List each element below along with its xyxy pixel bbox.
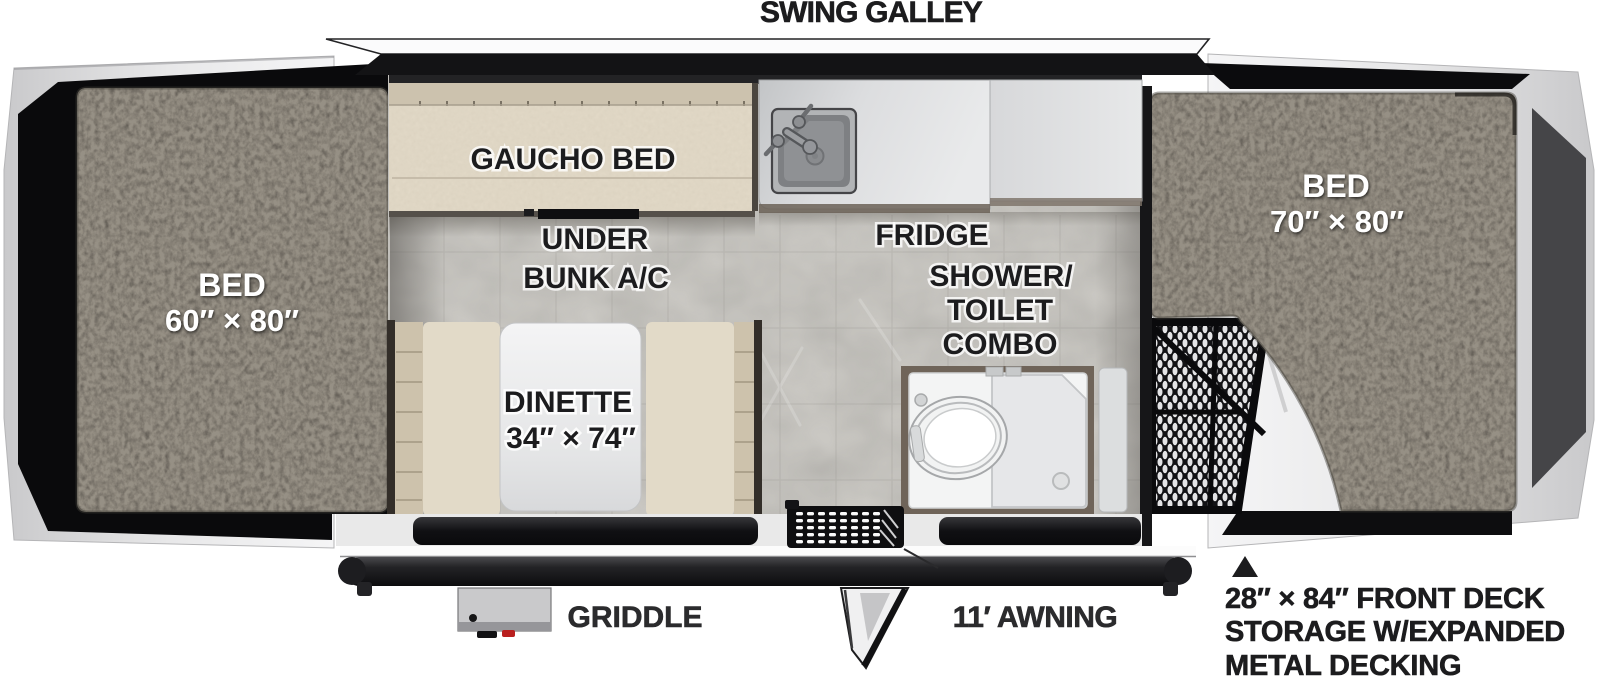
svg-text:SHOWER/: SHOWER/ [929, 260, 1073, 293]
svg-text:UNDER: UNDER [542, 223, 649, 256]
svg-text:34″ × 74″: 34″ × 74″ [506, 422, 636, 455]
svg-text:COMBO: COMBO [943, 328, 1058, 361]
svg-text:60″ × 80″: 60″ × 80″ [165, 303, 299, 338]
svg-text:TOILET: TOILET [947, 294, 1053, 327]
svg-text:28″ × 84″ FRONT DECK: 28″ × 84″ FRONT DECK [1225, 583, 1545, 615]
svg-text:SWING GALLEY: SWING GALLEY [760, 0, 983, 29]
svg-text:FRIDGE: FRIDGE [875, 219, 988, 252]
svg-text:70″ × 80″: 70″ × 80″ [1270, 204, 1404, 239]
svg-text:DINETTE: DINETTE [504, 386, 632, 419]
svg-text:METAL DECKING: METAL DECKING [1225, 650, 1461, 677]
svg-text:STORAGE W/EXPANDED: STORAGE W/EXPANDED [1225, 616, 1565, 648]
svg-text:GAUCHO BED: GAUCHO BED [470, 143, 675, 176]
svg-text:BED: BED [1302, 168, 1370, 204]
svg-text:11′ AWNING: 11′ AWNING [953, 601, 1117, 634]
svg-text:BUNK A/C: BUNK A/C [523, 262, 669, 295]
svg-text:BED: BED [198, 267, 266, 303]
svg-text:GRIDDLE: GRIDDLE [568, 601, 703, 634]
